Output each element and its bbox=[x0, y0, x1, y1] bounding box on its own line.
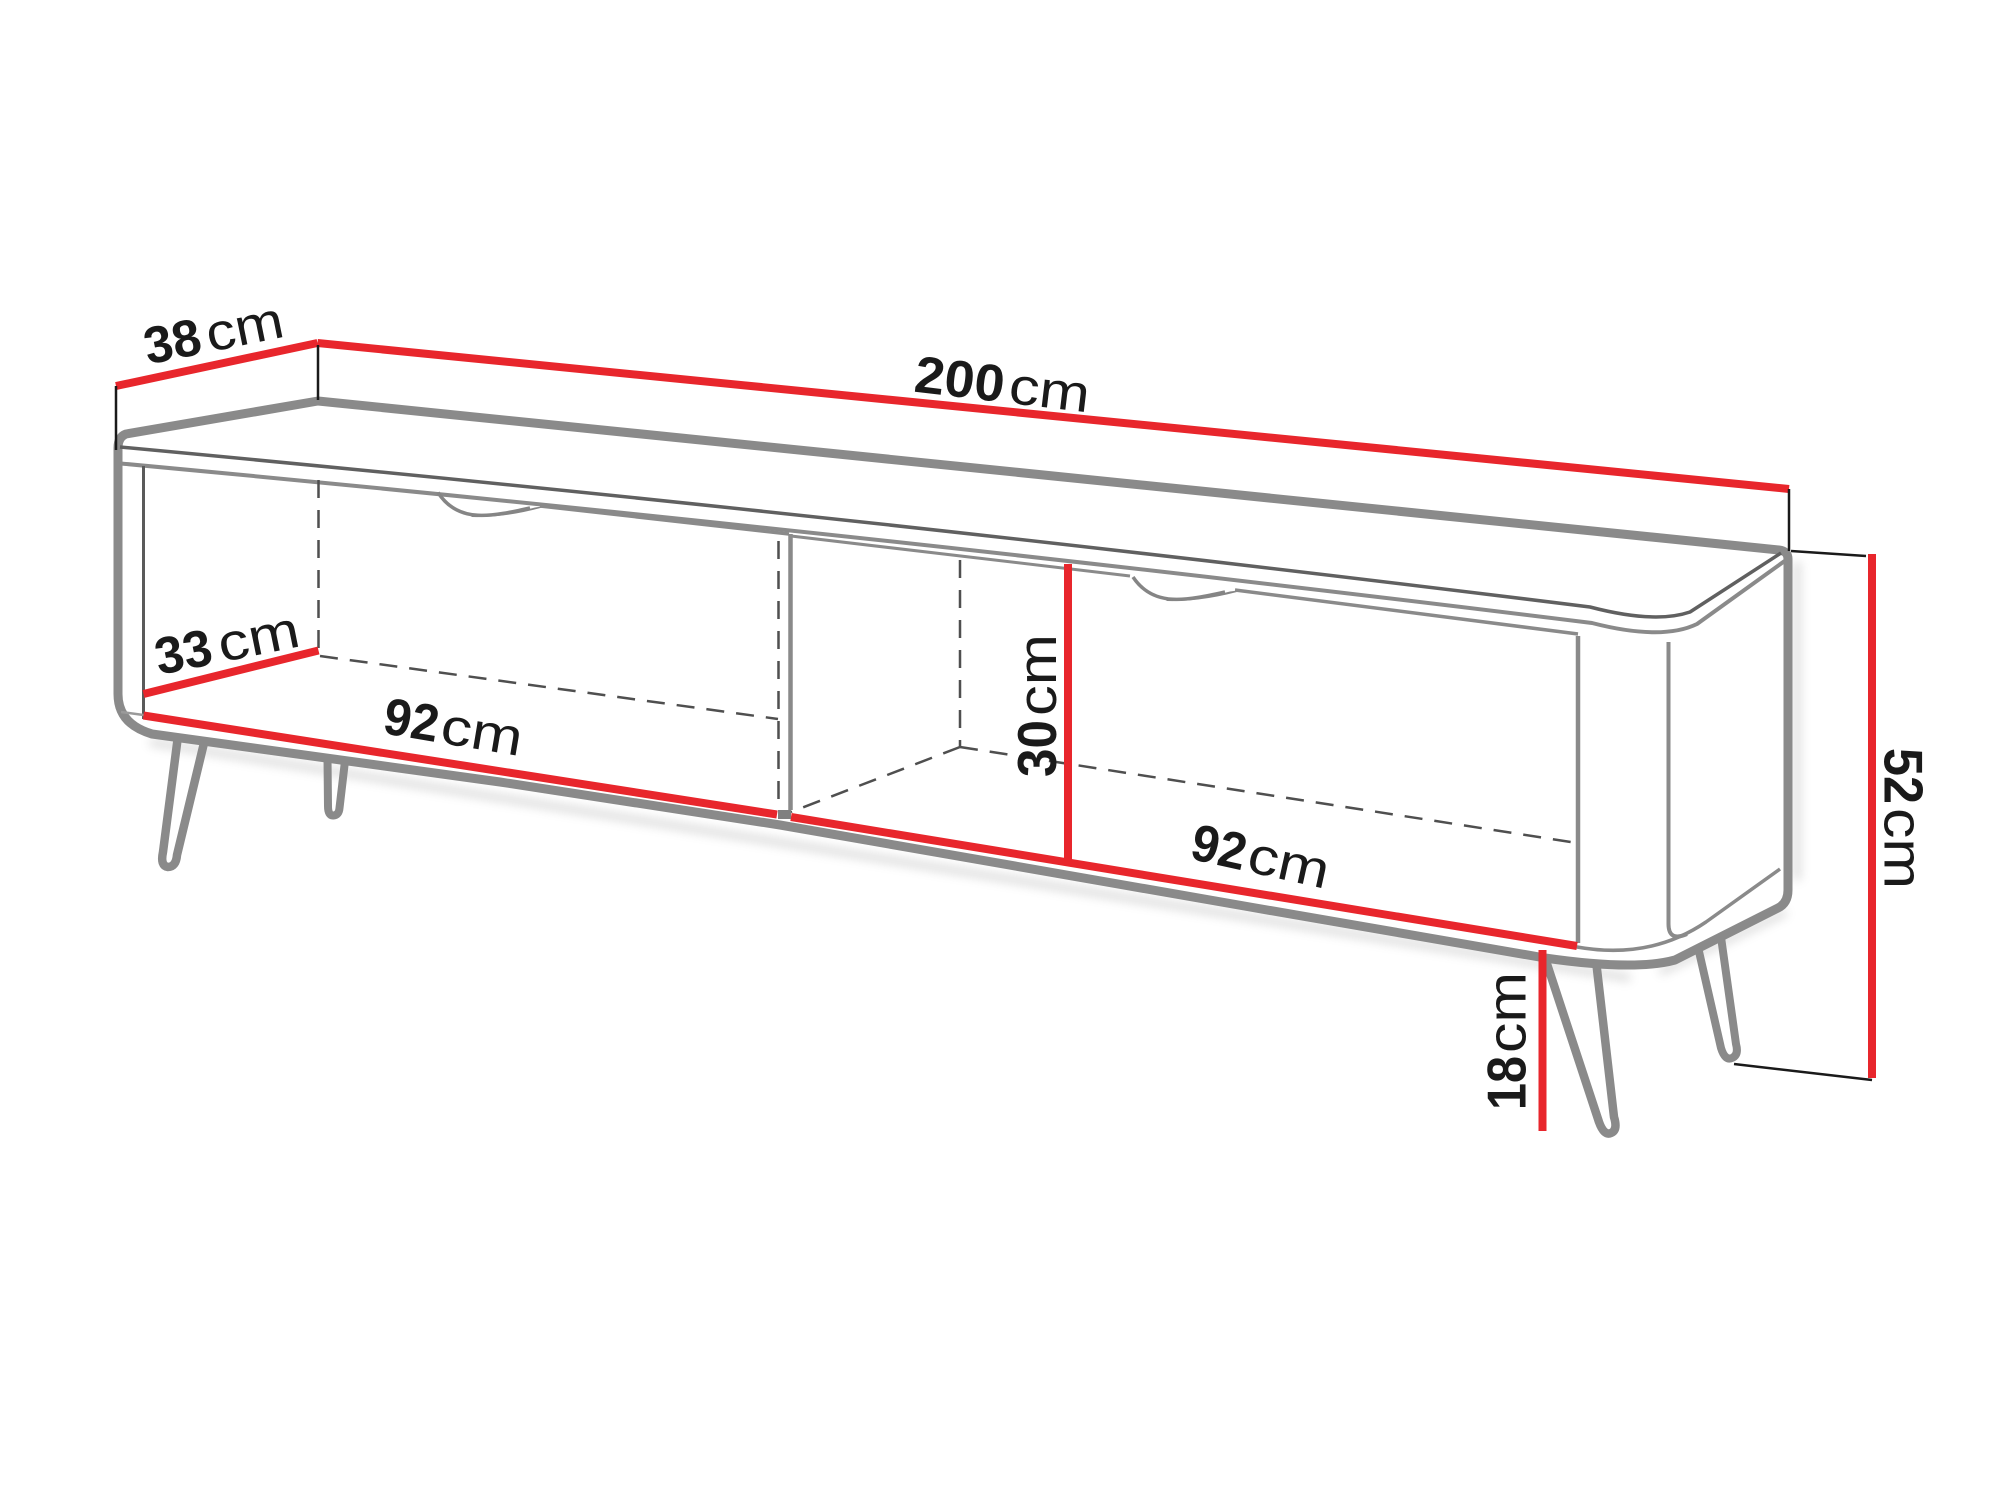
svg-text:cm: cm bbox=[1873, 808, 1935, 889]
svg-text:92: 92 bbox=[380, 688, 444, 754]
svg-text:33: 33 bbox=[150, 619, 217, 687]
svg-text:cm: cm bbox=[1006, 634, 1068, 716]
svg-text:38: 38 bbox=[139, 308, 206, 376]
svg-text:52: 52 bbox=[1873, 748, 1935, 804]
svg-text:30: 30 bbox=[1006, 720, 1068, 777]
svg-text:cm: cm bbox=[1476, 972, 1538, 1053]
svg-text:200: 200 bbox=[912, 346, 1008, 414]
svg-text:cm: cm bbox=[1006, 357, 1093, 424]
svg-text:18: 18 bbox=[1476, 1056, 1538, 1110]
